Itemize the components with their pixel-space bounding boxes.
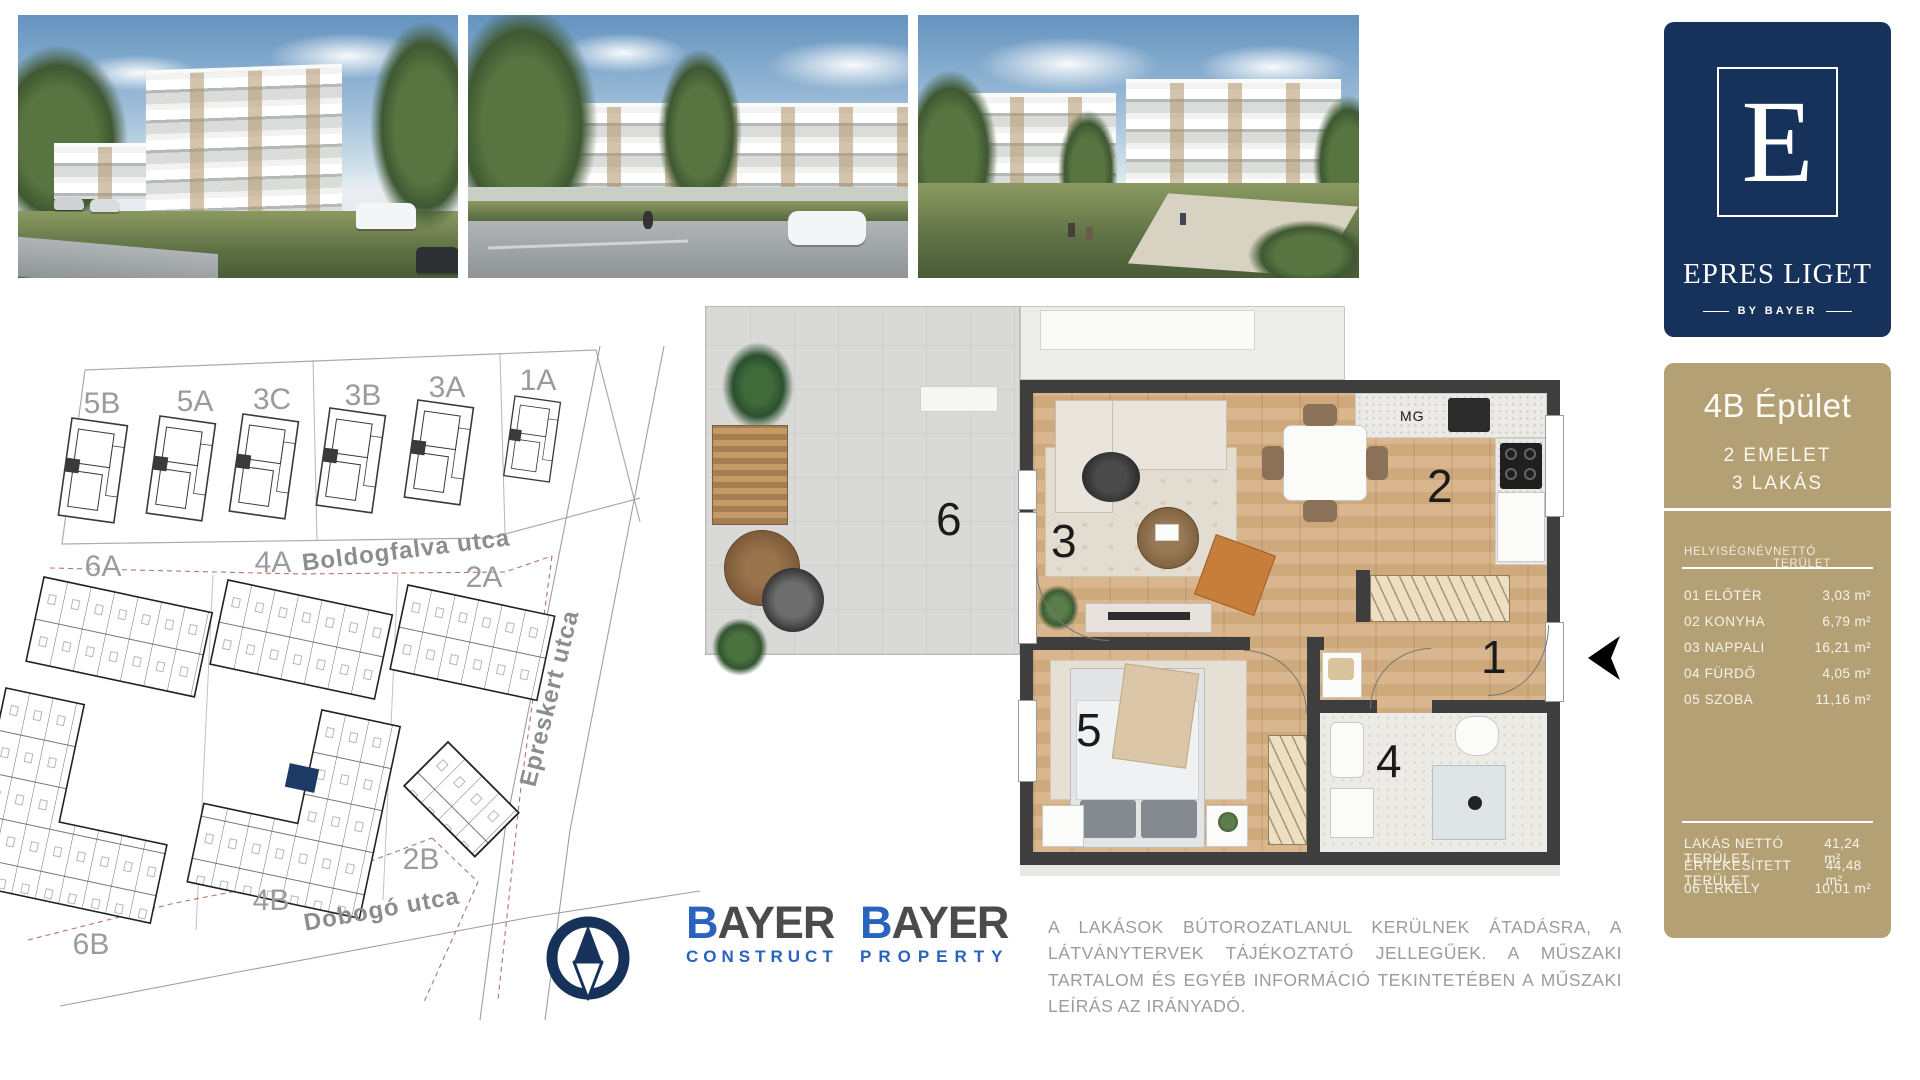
room-name: 03 NAPPALI xyxy=(1684,640,1765,655)
toilet xyxy=(1455,716,1499,756)
room-number-5: 5 xyxy=(1076,703,1102,757)
room-name: 01 ELŐTÉR xyxy=(1684,588,1762,603)
dining-chair xyxy=(1366,446,1388,480)
unit-info-panel: 4B Épület 2 EMELET 3 LAKÁS HELYISÉGNÉV N… xyxy=(1664,363,1891,938)
dining-chair xyxy=(1262,446,1284,480)
car xyxy=(54,197,84,210)
bedroom-wardrobe xyxy=(1268,735,1307,845)
summary-name: 06 ERKÉLY xyxy=(1684,881,1760,896)
brand-byline: BY BAYER xyxy=(1664,305,1891,317)
bedroom-window xyxy=(1018,700,1037,782)
table-row: 02 KONYHA 6,79 m² xyxy=(1684,614,1871,629)
fridge xyxy=(1497,492,1545,562)
label-6b: 6B xyxy=(73,928,110,961)
wall-top xyxy=(1020,380,1560,393)
wall-bath-top-right xyxy=(1432,700,1547,713)
plant xyxy=(712,618,768,676)
person xyxy=(1180,213,1186,225)
dining-chair xyxy=(1303,500,1337,522)
balcony-planter xyxy=(920,386,998,412)
label-3b: 3B xyxy=(345,379,382,412)
table-row: 04 FÜRDŐ 4,05 m² xyxy=(1684,666,1871,681)
appliance-label: MG xyxy=(1400,408,1425,424)
building-footprint-4a xyxy=(210,580,392,699)
washing-machine xyxy=(1330,788,1374,838)
bayer-property-sub: PROPERTY xyxy=(860,947,1035,967)
entrance-arrow-icon xyxy=(1588,636,1620,680)
label-2b: 2B xyxy=(403,843,440,876)
bayer-property-logo: BAYER PROPERTY xyxy=(860,900,1035,967)
shower-drain xyxy=(1468,796,1482,810)
building-footprint xyxy=(316,408,385,513)
dining-chair xyxy=(1303,404,1337,426)
wardrobe xyxy=(1370,575,1510,622)
burner xyxy=(1524,468,1536,480)
label-1a: 1A xyxy=(520,364,557,397)
bathroom-sink xyxy=(1330,722,1364,778)
table-row: 03 NAPPALI 16,21 m² xyxy=(1684,640,1871,655)
building-footprint xyxy=(229,414,298,519)
pillow xyxy=(1141,800,1197,838)
compass-icon xyxy=(544,914,632,1002)
bayer-wordmark: BAYER xyxy=(860,900,1035,945)
label-3c: 3C xyxy=(253,383,291,416)
pillow xyxy=(1080,800,1136,838)
hanging-chair xyxy=(762,568,824,632)
wall-bottom xyxy=(1020,852,1560,865)
unit-title: 4B Épület xyxy=(1664,387,1891,425)
tv xyxy=(1108,612,1190,620)
wall-stub xyxy=(1307,637,1324,650)
plant xyxy=(722,342,794,430)
room-number-1: 1 xyxy=(1481,630,1507,684)
brand-panel: E EPRES LIGET BY BAYER xyxy=(1664,22,1891,337)
kitchen-sink xyxy=(1448,398,1490,432)
room-number-3: 3 xyxy=(1051,514,1077,568)
unit-count: 3 LAKÁS xyxy=(1664,473,1891,495)
bayer-wordmark: BAYER xyxy=(686,900,861,945)
summary-area: 10,01 m² xyxy=(1815,881,1871,896)
wall-shadow xyxy=(1020,865,1560,876)
cloud xyxy=(768,40,908,90)
bench-pillow xyxy=(1328,658,1354,680)
building-footprint-4b xyxy=(187,690,400,918)
dining-table xyxy=(1283,425,1367,501)
room-number-6: 6 xyxy=(936,492,962,546)
room-name: 05 SZOBA xyxy=(1684,692,1753,707)
car xyxy=(416,247,458,273)
summary-row: 06 ERKÉLY 10,01 m² xyxy=(1684,881,1871,896)
wall-segment xyxy=(1356,570,1370,622)
divider-line xyxy=(1826,311,1852,312)
photo-render-3 xyxy=(918,15,1359,278)
person xyxy=(1086,227,1093,240)
wall-living-bedroom xyxy=(1033,637,1250,650)
burner xyxy=(1505,468,1517,480)
lounge-chair xyxy=(712,425,788,525)
throw-blanket xyxy=(1082,452,1140,502)
street-dobogo: Dobogó utca xyxy=(302,883,462,937)
col-room-name: HELYISÉGNÉV xyxy=(1684,546,1773,558)
room-area: 4,05 m² xyxy=(1822,666,1871,681)
label-3a: 3A xyxy=(429,371,466,404)
divider xyxy=(1682,567,1873,569)
label-6a: 6A xyxy=(85,550,122,583)
room-name: 02 KONYHA xyxy=(1684,614,1765,629)
disclaimer-text: A LAKÁSOK BÚTOROZATLANUL KERÜLNEK ÁTADÁS… xyxy=(1048,914,1622,1020)
photo-render-1 xyxy=(18,15,458,278)
brand-monogram: E xyxy=(1741,83,1813,201)
burner xyxy=(1524,448,1536,460)
car xyxy=(356,203,416,229)
photo-render-2 xyxy=(468,15,908,278)
wall-bath-top-left xyxy=(1320,700,1377,713)
room-name: 04 FÜRDŐ xyxy=(1684,666,1756,681)
building-footprint-6a xyxy=(26,577,212,697)
table-row: 05 SZOBA 11,16 m² xyxy=(1684,692,1871,707)
bayer-b: B xyxy=(686,897,718,948)
street-epreskert: Epreskert utca xyxy=(515,607,585,789)
burner xyxy=(1505,448,1517,460)
bed-throw xyxy=(1112,663,1200,769)
building-footprint xyxy=(58,418,127,523)
terrace-planter xyxy=(1040,310,1255,350)
building-footprint-2a xyxy=(390,585,555,700)
room-number-4: 4 xyxy=(1376,734,1402,788)
bayer-construct-sub: CONSTRUCT xyxy=(686,947,861,967)
room-area: 3,03 m² xyxy=(1822,588,1871,603)
street-boldogfalva: Boldogfalva utca xyxy=(301,524,512,576)
divider xyxy=(1664,508,1891,511)
car xyxy=(90,199,120,212)
person xyxy=(1068,223,1075,237)
nightstand xyxy=(1042,805,1084,847)
building-footprint-2b xyxy=(404,742,519,857)
bayer-construct-logo: BAYER CONSTRUCT xyxy=(686,900,861,967)
building-render xyxy=(1126,79,1341,195)
building-render xyxy=(54,143,146,199)
building-footprint xyxy=(146,416,215,521)
brand-name: EPRES LIGET xyxy=(1664,258,1891,291)
wall-bedroom-bath xyxy=(1307,650,1320,852)
balcony-door-window xyxy=(1018,512,1037,644)
table-row: 01 ELŐTÉR 3,03 m² xyxy=(1684,588,1871,603)
room-area: 16,21 m² xyxy=(1815,640,1871,655)
unit-floor: 2 EMELET xyxy=(1664,445,1891,467)
label-2a: 2A xyxy=(466,561,503,594)
room-area: 6,79 m² xyxy=(1822,614,1871,629)
plant xyxy=(1218,812,1238,832)
brand-monogram-frame: E xyxy=(1717,67,1838,217)
page: E EPRES LIGET BY BAYER xyxy=(0,0,1920,1080)
bayer-b: B xyxy=(860,897,892,948)
brand-byline-text: BY BAYER xyxy=(1738,305,1818,317)
kitchen-window xyxy=(1545,415,1564,517)
label-5a: 5A xyxy=(177,385,214,418)
building-footprint xyxy=(404,400,473,505)
building-footprint-6b xyxy=(0,688,192,923)
car xyxy=(788,211,866,245)
book xyxy=(1155,524,1179,541)
room-area: 11,16 m² xyxy=(1816,692,1871,707)
label-4a: 4A xyxy=(255,546,292,579)
room-number-2: 2 xyxy=(1427,459,1453,513)
cyclist xyxy=(643,211,653,229)
divider-line xyxy=(1703,311,1729,312)
bayer-rest: AYER xyxy=(892,897,1009,948)
label-5b: 5B xyxy=(84,387,121,420)
label-4b: 4B xyxy=(253,884,290,917)
highlighted-unit[interactable] xyxy=(285,763,319,793)
bayer-rest: AYER xyxy=(718,897,835,948)
building-footprint xyxy=(504,396,561,482)
building-render xyxy=(146,64,342,223)
divider xyxy=(1682,821,1873,823)
window xyxy=(1018,470,1037,510)
